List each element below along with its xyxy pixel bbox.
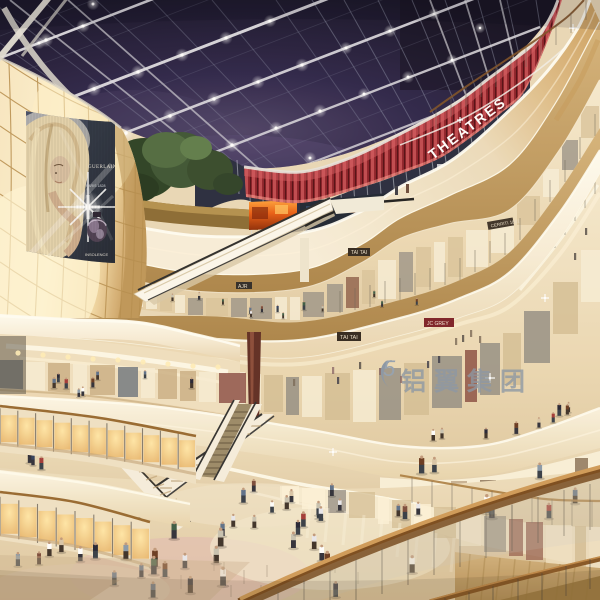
svg-text:5: 5 bbox=[383, 356, 396, 381]
svg-text:铝翼集团: 铝翼集团 bbox=[401, 367, 533, 396]
